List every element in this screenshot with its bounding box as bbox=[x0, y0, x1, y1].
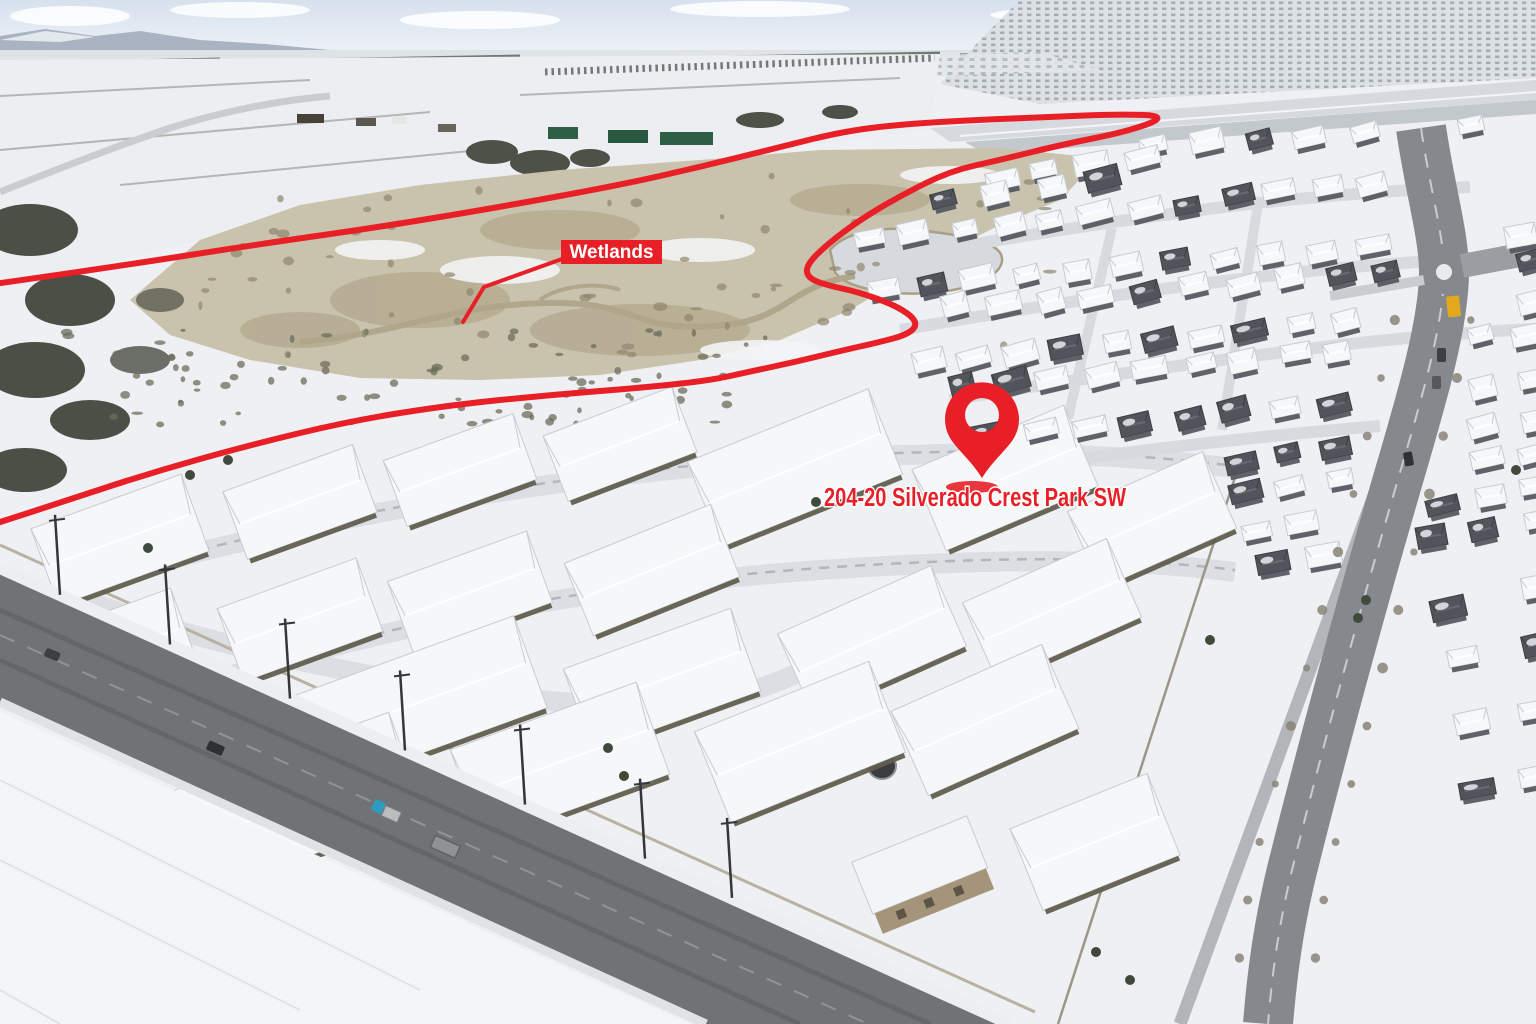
shrub bbox=[364, 394, 370, 401]
evergreen-tree bbox=[1125, 975, 1135, 985]
marsh-reed bbox=[388, 259, 394, 267]
marsh-reed bbox=[326, 255, 334, 258]
shrub bbox=[369, 393, 380, 399]
bare-tree bbox=[1377, 374, 1385, 382]
marsh-reed bbox=[247, 277, 257, 281]
shrub bbox=[156, 422, 164, 428]
shrub bbox=[529, 343, 539, 348]
shrub bbox=[589, 380, 595, 384]
bare-tree bbox=[1452, 373, 1462, 383]
shrub bbox=[607, 377, 613, 382]
marsh-reed bbox=[583, 294, 596, 299]
bare-tree bbox=[1311, 953, 1320, 962]
shrub bbox=[237, 361, 245, 368]
marsh-reed bbox=[286, 287, 291, 293]
marsh-reed bbox=[444, 272, 455, 277]
marsh-reed bbox=[690, 307, 703, 310]
evergreen-tree bbox=[1091, 947, 1101, 957]
marsh-reed bbox=[770, 284, 782, 288]
marsh-reed bbox=[617, 350, 628, 355]
shrub bbox=[268, 377, 274, 385]
shrub bbox=[146, 379, 154, 385]
bare-tree bbox=[1235, 953, 1244, 962]
shrub bbox=[131, 412, 143, 415]
evergreen-tree bbox=[1353, 613, 1363, 623]
marsh-reed bbox=[285, 351, 290, 358]
shrub bbox=[193, 380, 201, 386]
shrub bbox=[722, 401, 733, 409]
shrub bbox=[591, 344, 597, 348]
bare-tree bbox=[1255, 838, 1263, 846]
bare-tree bbox=[1303, 664, 1310, 671]
shrub bbox=[721, 392, 731, 397]
shrub bbox=[744, 342, 749, 346]
shrub bbox=[568, 376, 578, 381]
evergreen-tree bbox=[619, 771, 629, 781]
shrub bbox=[577, 407, 582, 413]
evergreen-tree bbox=[223, 455, 233, 465]
marsh-reed bbox=[607, 199, 611, 206]
shrub bbox=[290, 335, 295, 343]
wetlands-label: Wetlands bbox=[561, 240, 662, 264]
shrub bbox=[112, 350, 123, 357]
shrub bbox=[154, 340, 165, 345]
bare-tree bbox=[1317, 605, 1327, 615]
shrub bbox=[656, 373, 661, 380]
shrub bbox=[625, 393, 631, 398]
aerial-photo-canvas: Wetlands 204-20 Silverado Crest Park SW bbox=[0, 0, 1536, 1024]
marsh-reed bbox=[630, 199, 642, 208]
shrub bbox=[180, 329, 185, 332]
marsh-reed bbox=[720, 214, 725, 219]
bare-tree bbox=[1350, 490, 1358, 498]
marsh-reed bbox=[283, 257, 294, 266]
bare-tree bbox=[1410, 548, 1417, 555]
shrub bbox=[337, 395, 347, 401]
shrub bbox=[495, 409, 502, 413]
marsh-reed bbox=[1023, 179, 1035, 185]
shrub bbox=[186, 351, 194, 356]
shrub bbox=[710, 421, 721, 424]
shrub bbox=[181, 376, 186, 382]
marsh-reed bbox=[198, 301, 202, 310]
marsh-reed bbox=[769, 173, 775, 180]
evergreen-tree bbox=[811, 497, 821, 507]
marsh-reed bbox=[684, 314, 693, 322]
marsh-reed bbox=[475, 186, 482, 195]
marsh-reed bbox=[269, 228, 279, 235]
marsh-reed bbox=[857, 263, 865, 272]
marsh-reed bbox=[845, 270, 856, 275]
shrub bbox=[678, 387, 688, 393]
bare-tree bbox=[1332, 838, 1340, 846]
shrub bbox=[508, 334, 515, 342]
marsh-reed bbox=[760, 225, 769, 234]
marsh-reed bbox=[725, 322, 730, 330]
shrub bbox=[614, 367, 621, 375]
evergreen-tree bbox=[185, 470, 195, 480]
marsh-reed bbox=[621, 343, 634, 349]
shrub bbox=[301, 377, 307, 384]
evergreen-tree bbox=[603, 743, 613, 753]
marsh-reed bbox=[389, 312, 395, 317]
bare-tree bbox=[1390, 315, 1400, 325]
shrub bbox=[461, 354, 469, 361]
marsh-reed bbox=[277, 195, 284, 202]
shrub bbox=[320, 361, 330, 368]
shrub bbox=[220, 420, 226, 426]
marsh-reed bbox=[717, 283, 727, 290]
address-label: 204-20 Silverado Crest Park SW bbox=[824, 484, 1127, 512]
shrub bbox=[235, 412, 241, 416]
evergreen-tree bbox=[1511, 465, 1521, 475]
shrub bbox=[698, 354, 709, 360]
bare-tree bbox=[1377, 663, 1388, 674]
marsh-reed bbox=[752, 293, 761, 298]
evergreen-tree bbox=[143, 543, 153, 553]
shrub bbox=[390, 379, 398, 386]
marsh-reed bbox=[466, 288, 473, 296]
shrub bbox=[120, 391, 130, 399]
shrub bbox=[523, 403, 532, 410]
shrub bbox=[763, 335, 768, 340]
shrub bbox=[645, 328, 653, 333]
marsh-reed bbox=[653, 302, 667, 311]
marsh-reed bbox=[1039, 207, 1052, 210]
house bbox=[1415, 523, 1449, 554]
marsh-reed bbox=[842, 309, 852, 316]
bare-tree bbox=[1333, 547, 1343, 557]
bare-tree bbox=[1424, 489, 1435, 500]
shrub bbox=[220, 382, 230, 389]
shrub bbox=[278, 366, 287, 371]
aerial-photo: Wetlands 204-20 Silverado Crest Park SW bbox=[0, 0, 1536, 1024]
marsh-reed bbox=[201, 288, 209, 293]
shrub bbox=[321, 333, 332, 337]
shrub bbox=[430, 368, 437, 375]
shrub bbox=[439, 414, 445, 419]
bare-tree bbox=[1347, 780, 1355, 788]
school-bus bbox=[1446, 295, 1461, 317]
marsh-reed bbox=[872, 262, 880, 267]
evergreen-tree bbox=[1205, 635, 1215, 645]
marsh-reed bbox=[477, 331, 489, 339]
shrub bbox=[194, 388, 201, 391]
marsh-reed bbox=[771, 287, 777, 292]
shrub bbox=[631, 378, 641, 383]
marsh-reed bbox=[362, 330, 367, 338]
marsh-reed bbox=[1043, 270, 1056, 274]
marsh-reed bbox=[363, 206, 371, 212]
marsh-reed bbox=[829, 266, 841, 271]
bare-tree bbox=[1319, 896, 1328, 905]
house bbox=[1503, 222, 1536, 254]
shrub bbox=[178, 400, 184, 406]
marsh-reed bbox=[627, 352, 637, 357]
marsh-reed bbox=[680, 257, 689, 262]
bare-tree bbox=[1286, 721, 1296, 731]
bare-tree bbox=[1243, 895, 1252, 904]
shrub bbox=[510, 328, 519, 334]
wetlands-label-text: Wetlands bbox=[569, 242, 653, 263]
shrub bbox=[576, 378, 586, 386]
bare-tree bbox=[1363, 432, 1372, 441]
shrub bbox=[657, 330, 662, 337]
shrub bbox=[555, 353, 563, 356]
shrub bbox=[182, 365, 190, 372]
shrub bbox=[109, 414, 117, 420]
evergreen-tree bbox=[1361, 595, 1371, 605]
bare-tree bbox=[1438, 431, 1447, 440]
marsh-reed bbox=[817, 318, 829, 326]
shrub bbox=[322, 367, 330, 375]
shrub bbox=[522, 411, 534, 418]
bare-tree bbox=[1467, 316, 1474, 323]
shrub bbox=[168, 353, 175, 360]
shrub bbox=[692, 329, 696, 337]
shrub bbox=[133, 373, 140, 379]
bare-tree bbox=[1363, 722, 1372, 731]
shrub bbox=[455, 397, 461, 401]
shrub bbox=[712, 354, 721, 358]
marsh-reed bbox=[208, 278, 217, 281]
marsh-reed bbox=[454, 317, 461, 325]
marsh-reed bbox=[846, 208, 850, 214]
shrub bbox=[467, 421, 478, 426]
shrub bbox=[173, 364, 179, 371]
bare-tree bbox=[1272, 780, 1279, 787]
bare-tree bbox=[1393, 605, 1403, 615]
shrub bbox=[230, 374, 239, 380]
marsh-reed bbox=[383, 195, 392, 202]
shrub bbox=[548, 414, 556, 421]
shrub bbox=[61, 329, 73, 336]
